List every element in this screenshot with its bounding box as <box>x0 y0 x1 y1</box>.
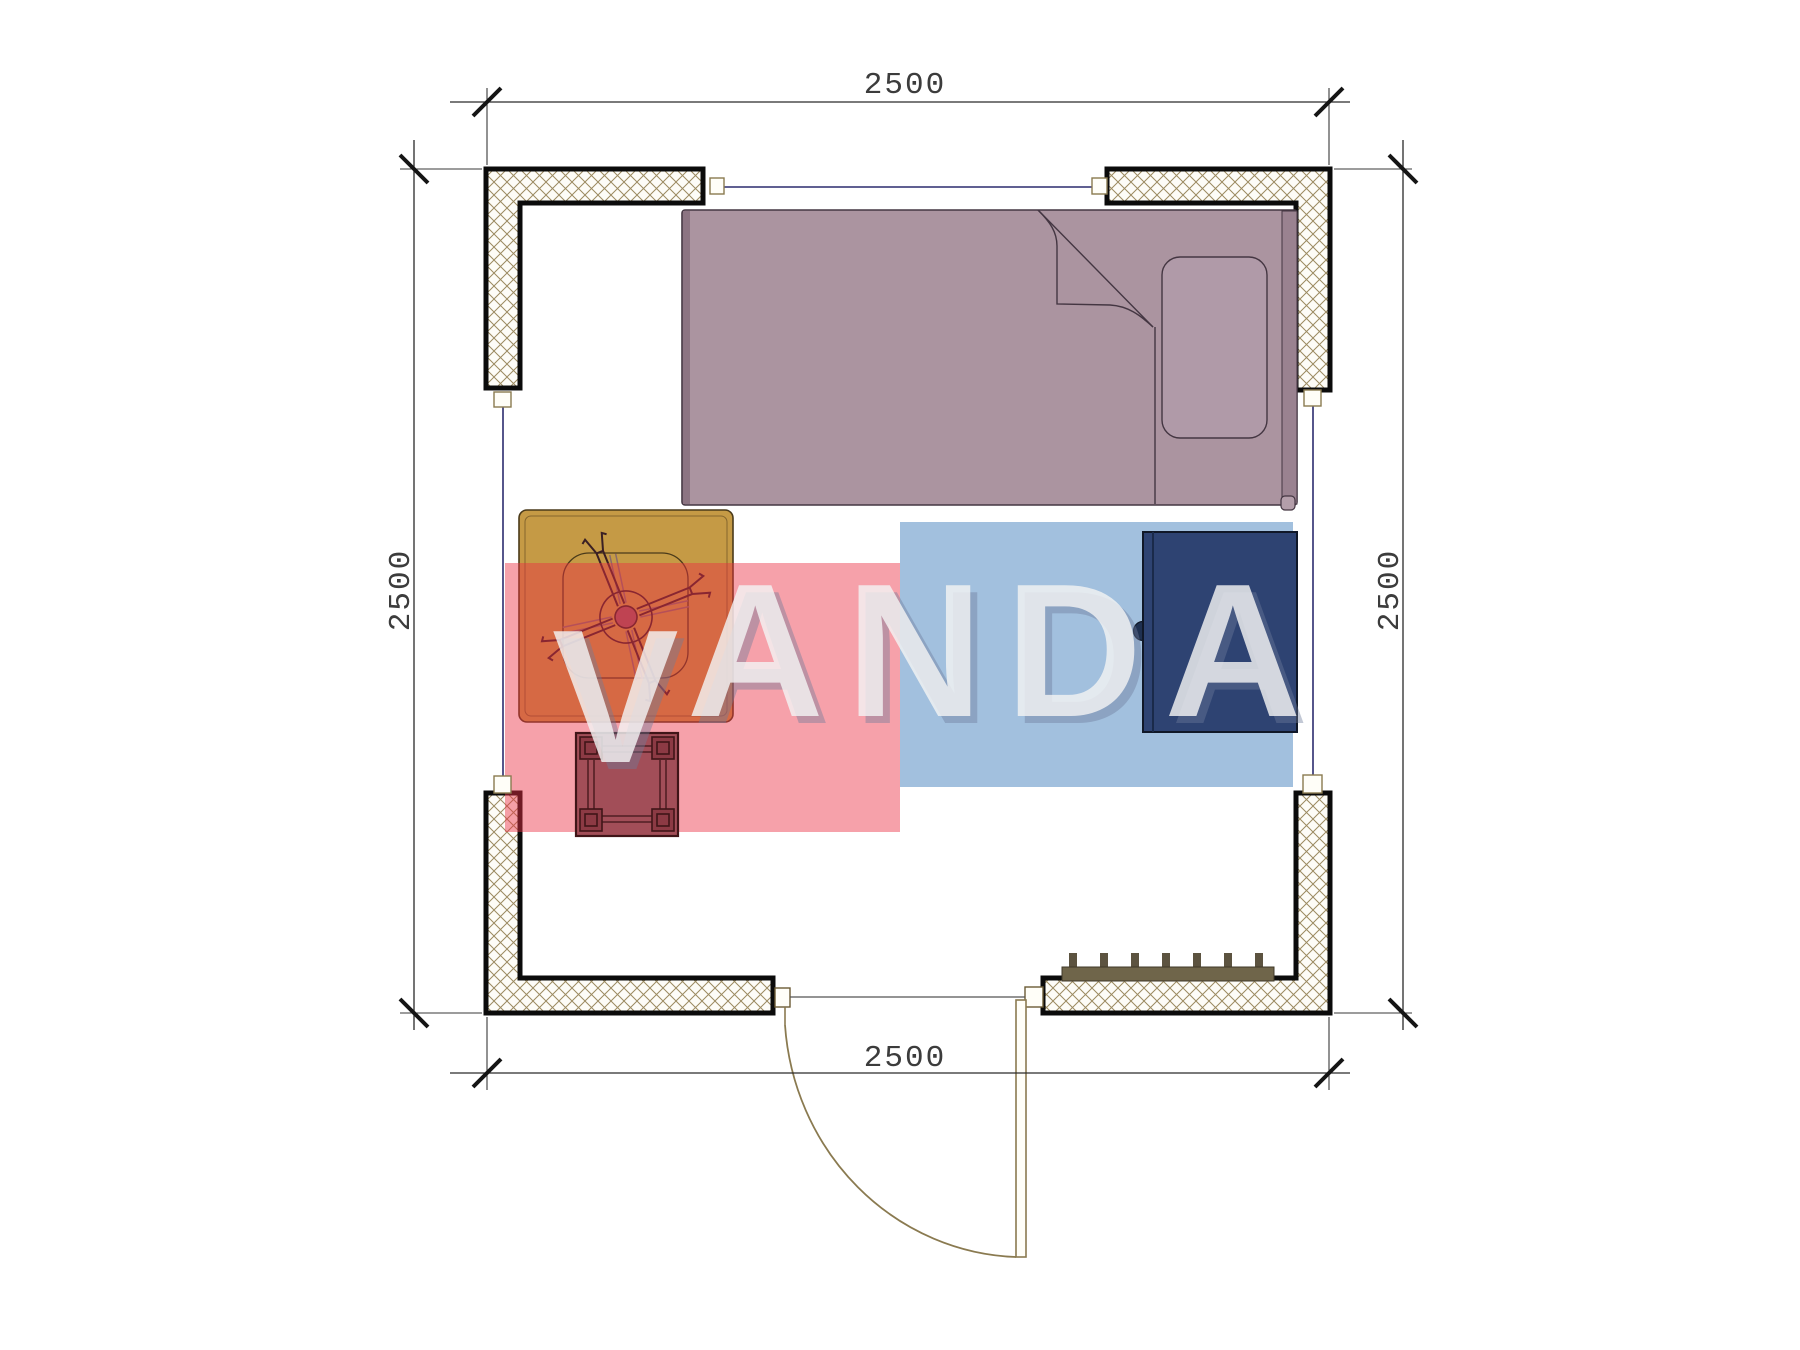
pillow <box>1162 257 1267 438</box>
door-jamb-right <box>1025 987 1043 1007</box>
watermark-letter-v: V <box>552 591 687 803</box>
radiator-bar <box>1062 967 1274 981</box>
door-jamb-left <box>775 988 790 1007</box>
window-frame <box>1092 178 1107 194</box>
window-frame <box>1303 775 1322 793</box>
window-frame <box>494 392 511 407</box>
floor-plan-page: 2500 2500 2500 2500 VANDA VANDA <box>0 0 1800 1350</box>
door-leaf <box>1016 1000 1026 1257</box>
window-frame <box>1304 390 1321 406</box>
window-frame <box>494 776 511 793</box>
radiator-fins <box>1069 953 1263 968</box>
floor-plan-drawing: 2500 2500 2500 2500 VANDA VANDA <box>0 0 1800 1350</box>
radiator <box>1062 953 1274 981</box>
bed-headboard <box>1282 211 1297 504</box>
watermark-letters-rest: ANDA <box>687 545 1324 757</box>
wall-top-left <box>486 169 703 388</box>
window-frame <box>710 178 724 194</box>
bed-post <box>1281 496 1295 510</box>
dimension-label-right: 2500 <box>1373 549 1408 631</box>
bed <box>682 210 1297 510</box>
dimension-label-bottom: 2500 <box>864 1041 946 1076</box>
bed-foot-trim <box>683 211 690 504</box>
dimension-label-left: 2500 <box>384 549 419 631</box>
dimension-label-top: 2500 <box>864 68 946 103</box>
door <box>775 987 1043 1257</box>
